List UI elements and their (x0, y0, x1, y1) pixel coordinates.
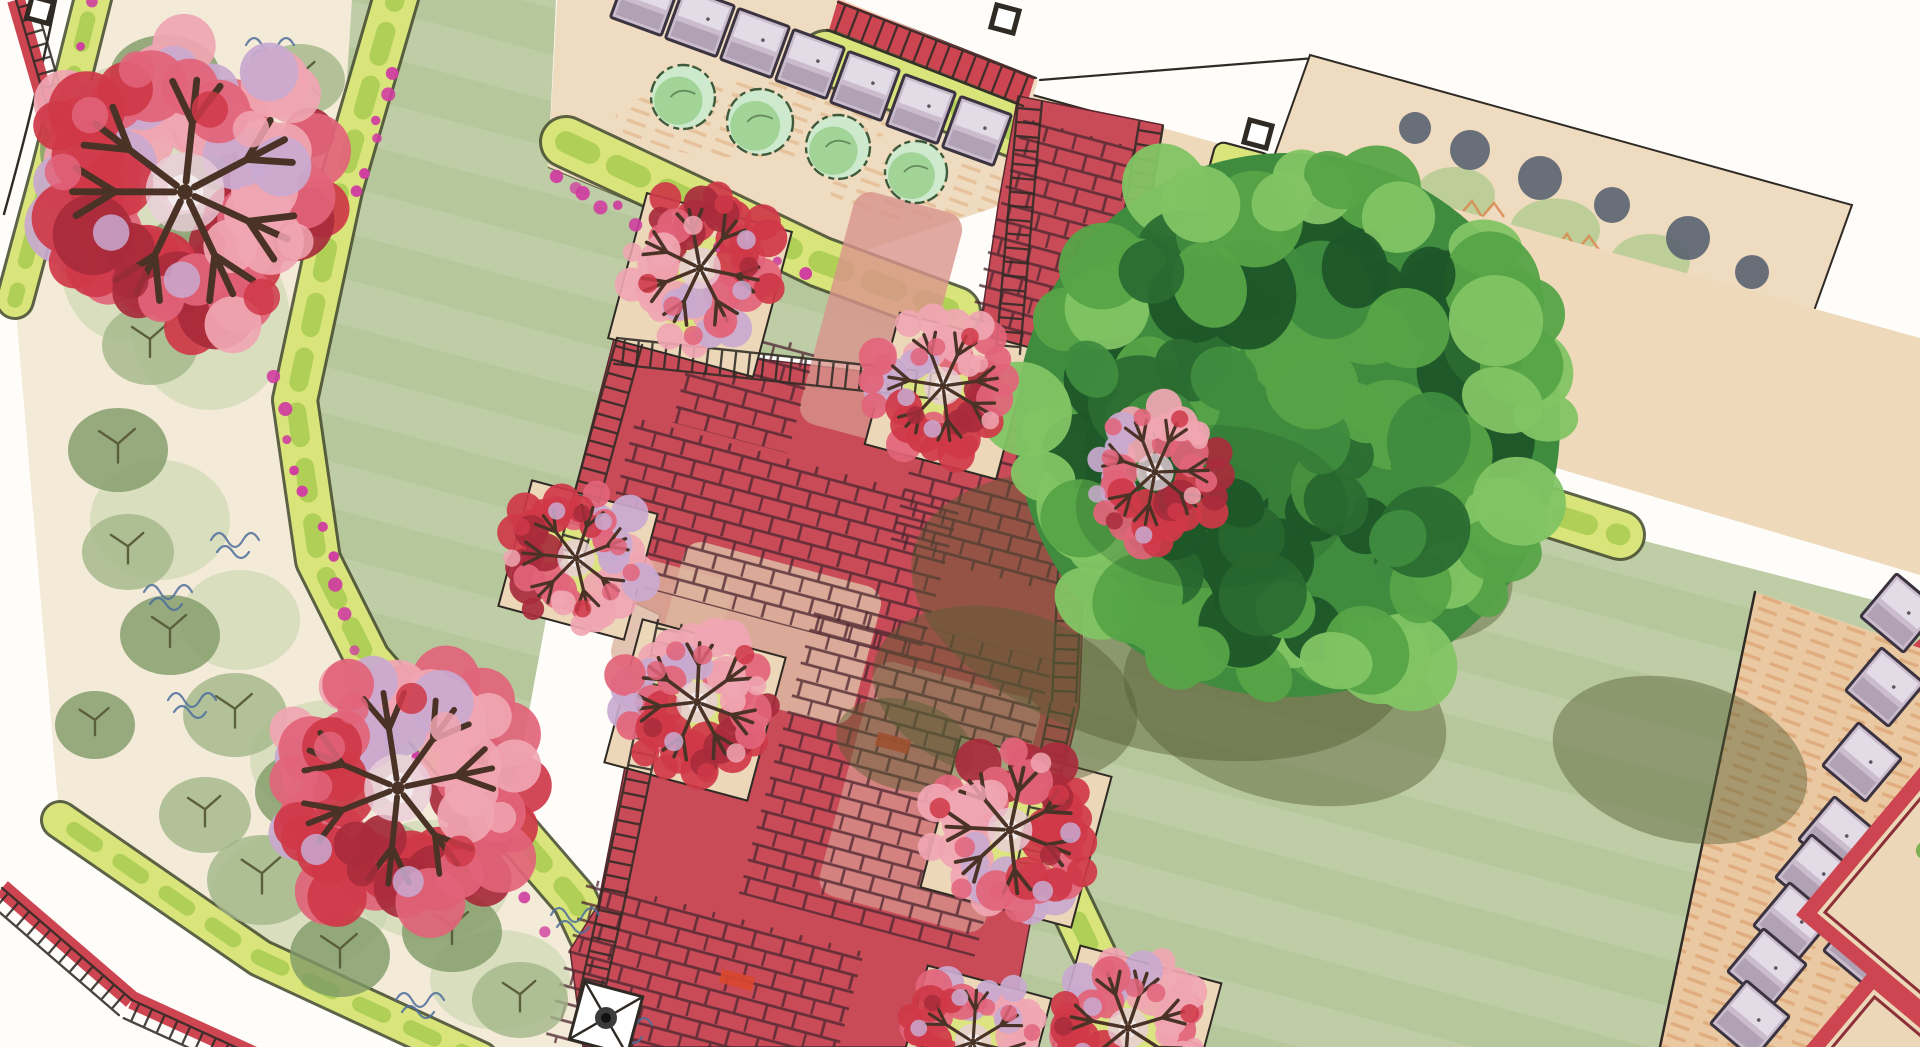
pink-canopy-overblob (684, 326, 703, 345)
pink-canopy-overblob (714, 195, 733, 214)
pink-canopy-overblob (643, 718, 662, 737)
bed-blob-slate (1735, 255, 1769, 289)
flower-dot (351, 185, 363, 197)
pink-canopy-overblob (747, 676, 766, 695)
flower-dot (629, 218, 642, 231)
shrub-shade (888, 152, 935, 199)
flower-dot (381, 87, 395, 101)
pink-canopy-blob (861, 393, 887, 419)
pink-canopy-overblob (623, 564, 640, 581)
flower-dot (613, 200, 623, 210)
pink-canopy-overblob (503, 549, 520, 566)
flower-dot (799, 267, 812, 280)
pink-canopy-overblob (301, 771, 332, 802)
pink-canopy-blob (976, 380, 1013, 417)
pink-canopy-overblob (624, 693, 643, 712)
pink-canopy-overblob (1060, 822, 1081, 843)
flower-dot (297, 486, 308, 497)
pink-tree-trunk (572, 554, 579, 561)
pink-canopy-blob (251, 136, 311, 196)
pink-canopy-overblob (1096, 959, 1115, 978)
flower-dot (278, 402, 292, 416)
pink-canopy-overblob (666, 641, 685, 660)
drain-hole (601, 1013, 611, 1023)
pink-canopy-overblob (314, 732, 345, 763)
pink-canopy-overblob (244, 279, 280, 315)
pink-canopy-overblob (623, 243, 642, 262)
pink-canopy-overblob (737, 230, 756, 249)
pink-canopy-overblob (338, 693, 369, 724)
flower-dot (328, 551, 339, 562)
pink-tree-trunk (970, 1039, 977, 1046)
pink-canopy-overblob (45, 154, 81, 190)
pink-canopy-overblob (970, 355, 988, 373)
pink-canopy-overblob (551, 590, 568, 607)
pink-canopy-overblob (1040, 845, 1061, 866)
pink-canopy-overblob (924, 995, 941, 1012)
flower-dot (550, 170, 563, 183)
pink-canopy-overblob (924, 420, 942, 438)
pink-canopy-overblob (1088, 485, 1105, 502)
pink-canopy-overblob (981, 412, 999, 430)
bed-blob-slate (1450, 130, 1490, 170)
garden-plan-stage (0, 0, 1920, 1047)
pink-canopy-overblob (910, 348, 928, 366)
pink-canopy-overblob (716, 316, 735, 335)
pink-canopy-overblob (573, 505, 590, 522)
pink-canopy-overblob (726, 743, 745, 762)
pink-canopy-overblob (393, 866, 424, 897)
pink-tree-trunk (177, 184, 192, 199)
pink-canopy-blob (240, 43, 299, 102)
pink-canopy-overblob (430, 712, 461, 743)
flower-dot (318, 522, 328, 532)
pink-tree-trunk (939, 382, 946, 389)
pink-canopy-overblob (1134, 409, 1151, 426)
flower-dot (359, 168, 370, 179)
pink-canopy-overblob (951, 878, 972, 899)
pink-tree-trunk (1151, 468, 1158, 475)
pink-canopy-overblob (684, 216, 703, 235)
flower-dot (349, 645, 359, 655)
pink-canopy-overblob (574, 600, 591, 617)
pink-canopy-overblob (697, 763, 716, 782)
pink-tree-trunk (1006, 826, 1015, 835)
pink-canopy-overblob (1106, 512, 1123, 529)
flower-dot (539, 926, 550, 937)
pink-canopy-overblob (732, 281, 751, 300)
pink-canopy-overblob (485, 802, 516, 833)
pink-canopy-overblob (739, 257, 758, 276)
pink-canopy-overblob (897, 388, 915, 406)
pink-canopy-overblob (595, 513, 612, 530)
bed-blob-slate (1399, 112, 1431, 144)
pink-canopy-overblob (1167, 503, 1184, 520)
pink-tree-trunk (693, 698, 701, 706)
pink-canopy-overblob (602, 583, 619, 600)
pink-canopy-overblob (907, 406, 925, 424)
fence-post (991, 5, 1019, 33)
fence-post (27, 0, 54, 23)
pink-canopy-overblob (735, 645, 754, 664)
pink-canopy-overblob (910, 1020, 927, 1037)
pink-canopy-overblob (164, 262, 200, 298)
flower-dot (267, 370, 280, 383)
pink-canopy-overblob (663, 297, 682, 316)
pink-canopy-overblob (610, 538, 627, 555)
pink-canopy-overblob (693, 645, 712, 664)
pink-canopy-overblob (72, 97, 108, 133)
flower-dot (593, 200, 607, 214)
pink-canopy-overblob (1180, 1004, 1199, 1023)
pink-canopy-overblob (513, 518, 530, 535)
flower-dot (328, 577, 342, 591)
pink-canopy-blob (631, 739, 659, 767)
pink-canopy-overblob (1102, 449, 1119, 466)
pink-canopy-overblob (347, 855, 378, 886)
garden-plan-illustration (0, 0, 1920, 1047)
pink-tree-trunk (1124, 1024, 1132, 1032)
pink-canopy-blob (918, 833, 946, 861)
flower-dot (576, 186, 590, 200)
pink-canopy-overblob (301, 834, 332, 865)
bed-blob-slate (1518, 156, 1562, 200)
pink-canopy-blob (1000, 975, 1027, 1002)
pink-canopy-overblob (1135, 526, 1152, 543)
pink-canopy-overblob (1125, 978, 1144, 997)
pink-canopy-overblob (1024, 1024, 1041, 1041)
pink-canopy-blob (513, 564, 540, 591)
pink-canopy-overblob (1000, 1005, 1017, 1022)
pink-tree-trunk (696, 264, 704, 272)
pink-canopy-overblob (233, 111, 269, 147)
pink-canopy-overblob (444, 835, 475, 866)
shrub (651, 65, 715, 129)
flower-dot (76, 42, 85, 51)
pink-canopy-overblob (1104, 418, 1121, 435)
pink-canopy-overblob (961, 328, 979, 346)
fence-post-square (1244, 120, 1272, 148)
shrub (806, 115, 870, 179)
pink-canopy-overblob (396, 683, 427, 714)
shrub-shade (730, 101, 780, 151)
pink-canopy-overblob (112, 263, 148, 299)
bed-blob-slate (1666, 216, 1710, 260)
pink-canopy-overblob (277, 223, 313, 259)
pink-tree-trunk (392, 782, 405, 795)
flower-dot (518, 892, 530, 904)
pink-canopy-blob (657, 323, 684, 350)
pink-canopy-overblob (1083, 997, 1102, 1016)
pink-canopy-overblob (647, 661, 666, 680)
pink-canopy-overblob (1147, 984, 1166, 1003)
pink-canopy-overblob (966, 784, 987, 805)
pink-canopy-overblob (93, 214, 129, 250)
fence-post-square (991, 5, 1019, 33)
pink-canopy-overblob (954, 837, 975, 858)
pink-canopy-blob (488, 739, 541, 792)
pink-canopy-overblob (1171, 410, 1188, 427)
pink-canopy-overblob (119, 51, 155, 87)
shrub-shade (654, 77, 702, 125)
flower-dot (289, 466, 299, 476)
pink-canopy-overblob (1191, 432, 1208, 449)
pink-canopy-overblob (1184, 487, 1201, 504)
shrub-shade (809, 127, 857, 175)
pink-canopy-overblob (873, 353, 891, 371)
flower-dot (282, 435, 291, 444)
flower-dot (371, 116, 380, 125)
pink-canopy-overblob (548, 502, 565, 519)
pink-canopy-overblob (638, 274, 657, 293)
pink-canopy-overblob (928, 338, 946, 356)
pink-canopy-overblob (664, 732, 683, 751)
flower-dot (386, 67, 399, 80)
fence-post-square (27, 0, 54, 23)
pink-canopy-overblob (960, 435, 978, 453)
pink-canopy-overblob (978, 999, 995, 1016)
pink-canopy-overblob (989, 881, 1010, 902)
pink-canopy-blob (754, 273, 785, 304)
pink-canopy-overblob (951, 989, 968, 1006)
pink-canopy-overblob (192, 91, 228, 127)
flower-dot (372, 133, 382, 143)
bed-blob-slate (1594, 187, 1630, 223)
pink-canopy-blob (604, 654, 646, 696)
pink-canopy-overblob (1054, 1017, 1073, 1036)
pink-canopy-blob (920, 436, 945, 461)
pink-canopy-overblob (1032, 881, 1053, 902)
fence-post (1244, 120, 1272, 148)
pink-canopy-overblob (1048, 785, 1069, 806)
pink-canopy-overblob (930, 798, 951, 819)
pink-canopy-overblob (1031, 752, 1052, 773)
flower-dot (338, 607, 352, 621)
